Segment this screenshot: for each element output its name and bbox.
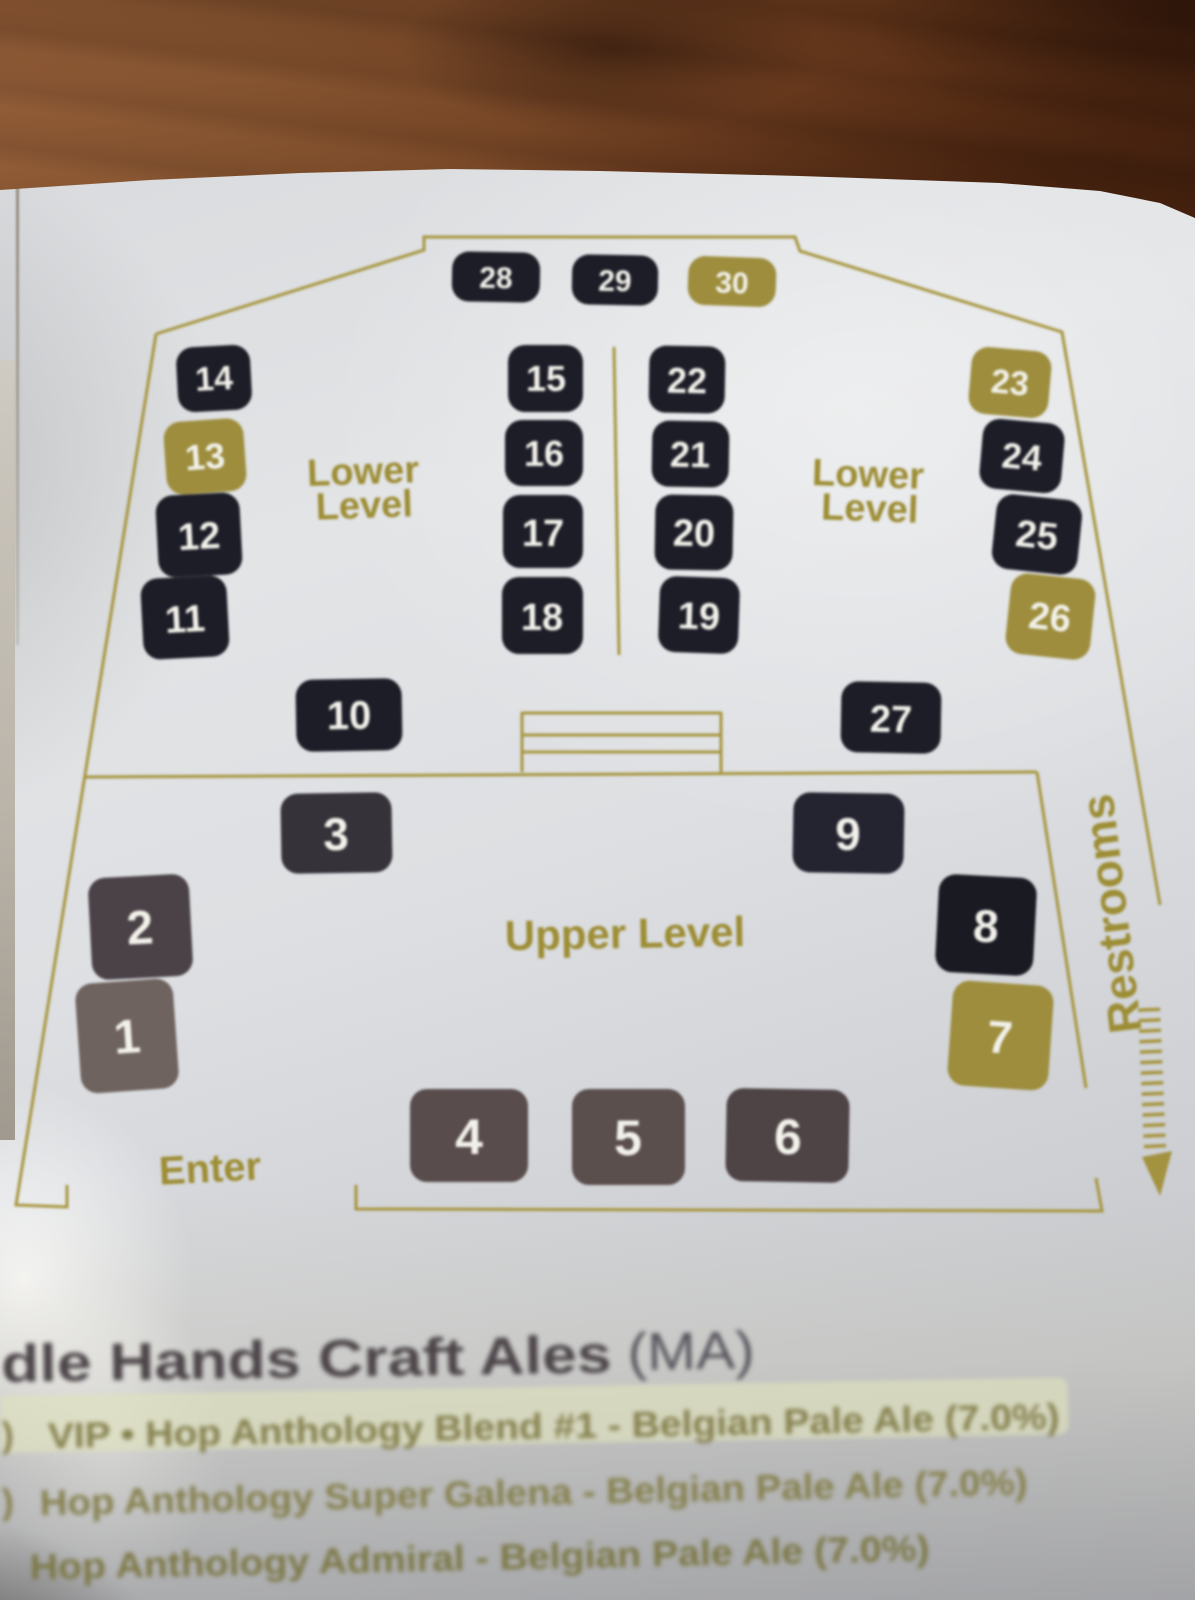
- svg-text:Idle Hands Craft Ales: Idle Hands Craft Ales: [0, 1325, 612, 1394]
- svg-text:(MA): (MA): [627, 1321, 755, 1382]
- svg-text:Hop Anthology Super Galena - B: Hop Anthology Super Galena - Belgian Pal…: [39, 1461, 1028, 1523]
- svg-text:): ): [1, 1414, 14, 1455]
- svg-text:): ): [1, 1481, 14, 1522]
- svg-text:Hop Anthology Admiral - Belgia: Hop Anthology Admiral - Belgian Pale Ale…: [29, 1528, 930, 1588]
